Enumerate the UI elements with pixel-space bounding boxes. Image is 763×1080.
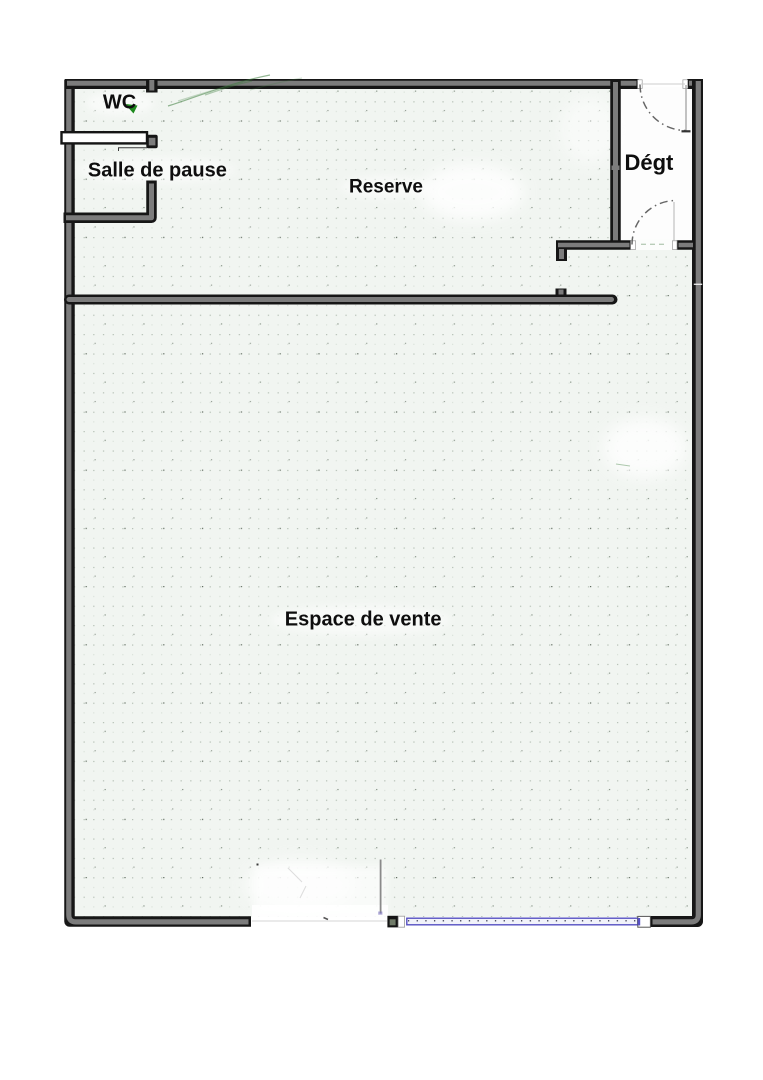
svg-text:Espace de vente: Espace de vente: [285, 609, 442, 631]
svg-text:Dégt: Dégt: [625, 150, 675, 175]
svg-text:Reserve: Reserve: [349, 177, 423, 198]
svg-text:WC: WC: [103, 92, 136, 114]
svg-text:Salle de pause: Salle de pause: [88, 160, 227, 182]
